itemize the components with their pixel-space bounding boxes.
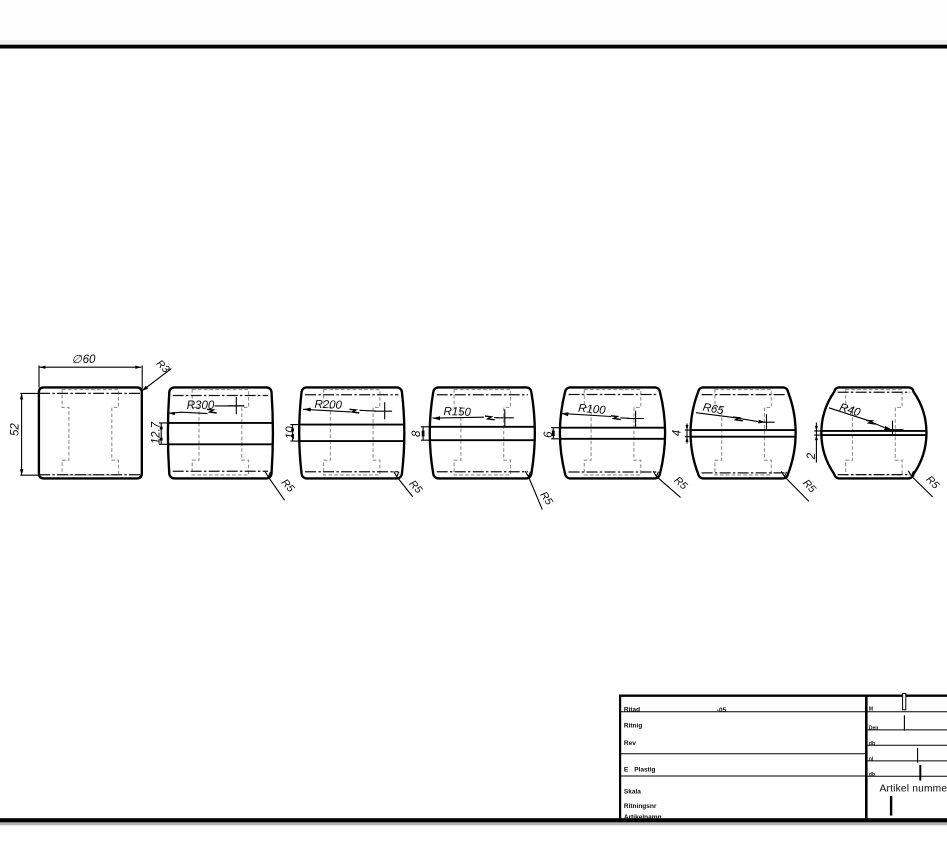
svg-text:nl: nl [869,757,874,763]
svg-text:Artikelnamn: Artikelnamn [624,814,662,821]
svg-text:Ritningsnr: Ritningsnr [624,803,657,810]
svg-text:Ritnig: Ritnig [624,722,642,729]
svg-text:4: 4 [672,430,684,436]
svg-text:R300: R300 [187,400,215,412]
svg-text:db: db [869,741,875,747]
svg-text:52: 52 [10,423,22,436]
svg-text:Plastig: Plastig [634,767,655,774]
svg-text:db: db [869,772,875,778]
svg-text:∅ 60: ∅ 60 [72,354,96,366]
svg-text:R150: R150 [443,406,471,419]
svg-text:E: E [624,767,629,774]
svg-text:Artikel nummer: Artikel nummer [880,784,947,795]
svg-text:R200: R200 [314,399,342,412]
svg-text:Ritad: Ritad [624,707,640,714]
svg-text:10: 10 [285,426,297,439]
svg-text:6: 6 [543,431,555,438]
svg-text:8: 8 [411,430,423,437]
svg-text:Den: Den [869,726,878,732]
svg-text:Rev: Rev [624,740,636,747]
svg-text:M: M [869,707,873,713]
svg-text:Skala: Skala [624,788,641,795]
svg-text:R100: R100 [578,403,607,417]
svg-text:2: 2 [806,452,818,460]
svg-text:-05: -05 [717,707,727,714]
svg-text:12.7: 12.7 [150,421,162,444]
